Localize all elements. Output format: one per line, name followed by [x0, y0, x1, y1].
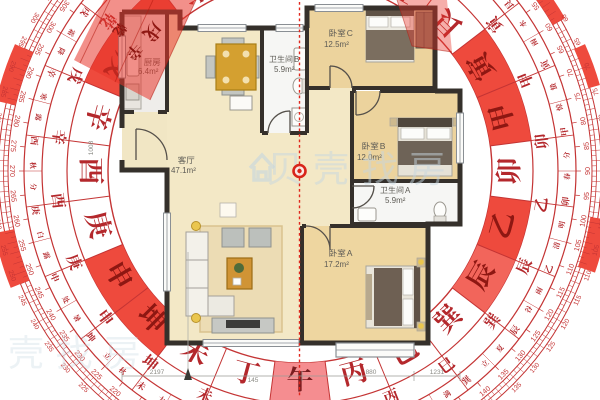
- svg-text:245: 245: [33, 285, 46, 300]
- svg-text:B: B: [380, 141, 386, 151]
- svg-text:140: 140: [477, 384, 492, 399]
- svg-text:300: 300: [28, 11, 40, 24]
- svg-text:5.9m²: 5.9m²: [385, 196, 406, 205]
- svg-text:120: 120: [560, 318, 572, 331]
- svg-text:65: 65: [573, 36, 583, 46]
- svg-text:220: 220: [108, 384, 123, 399]
- svg-text:115: 115: [554, 285, 567, 299]
- svg-text:240: 240: [44, 307, 58, 322]
- svg-text:80: 80: [578, 116, 588, 125]
- svg-text:2197: 2197: [150, 369, 165, 376]
- svg-text:300: 300: [44, 20, 58, 35]
- svg-text:145: 145: [248, 377, 259, 384]
- svg-text:880: 880: [366, 369, 377, 376]
- svg-text:95: 95: [581, 192, 591, 201]
- svg-text:130: 130: [529, 361, 542, 374]
- svg-text:5.9m²: 5.9m²: [274, 65, 295, 74]
- svg-text:225: 225: [77, 382, 90, 395]
- svg-text:305: 305: [57, 0, 71, 14]
- svg-text:135: 135: [511, 381, 524, 394]
- svg-text:295: 295: [33, 42, 46, 57]
- svg-text:125: 125: [528, 328, 542, 343]
- svg-text:1008: 1008: [88, 140, 95, 155]
- svg-text:17.2m²: 17.2m²: [324, 260, 349, 269]
- svg-text:1231: 1231: [430, 369, 445, 376]
- svg-text:75: 75: [592, 87, 600, 96]
- svg-text:240: 240: [29, 318, 41, 331]
- svg-text:105: 105: [572, 238, 584, 252]
- svg-text:125: 125: [545, 340, 557, 353]
- svg-text:A: A: [347, 248, 353, 258]
- svg-text:120: 120: [542, 307, 556, 322]
- svg-text:110: 110: [564, 262, 576, 276]
- svg-text:47.1m²: 47.1m²: [171, 166, 196, 175]
- svg-text:85: 85: [581, 142, 591, 151]
- svg-text:130: 130: [513, 348, 528, 363]
- svg-text:270: 270: [8, 165, 17, 177]
- svg-text:275: 275: [9, 140, 19, 153]
- svg-text:C: C: [347, 28, 353, 38]
- svg-text:265: 265: [9, 190, 19, 203]
- svg-text:90: 90: [583, 167, 592, 175]
- svg-text:12.5m²: 12.5m²: [324, 40, 349, 49]
- svg-text:B: B: [294, 55, 299, 64]
- svg-text:65: 65: [555, 44, 567, 55]
- svg-text:305: 305: [42, 0, 54, 2]
- svg-text:235: 235: [43, 340, 55, 353]
- svg-text:A: A: [405, 186, 411, 195]
